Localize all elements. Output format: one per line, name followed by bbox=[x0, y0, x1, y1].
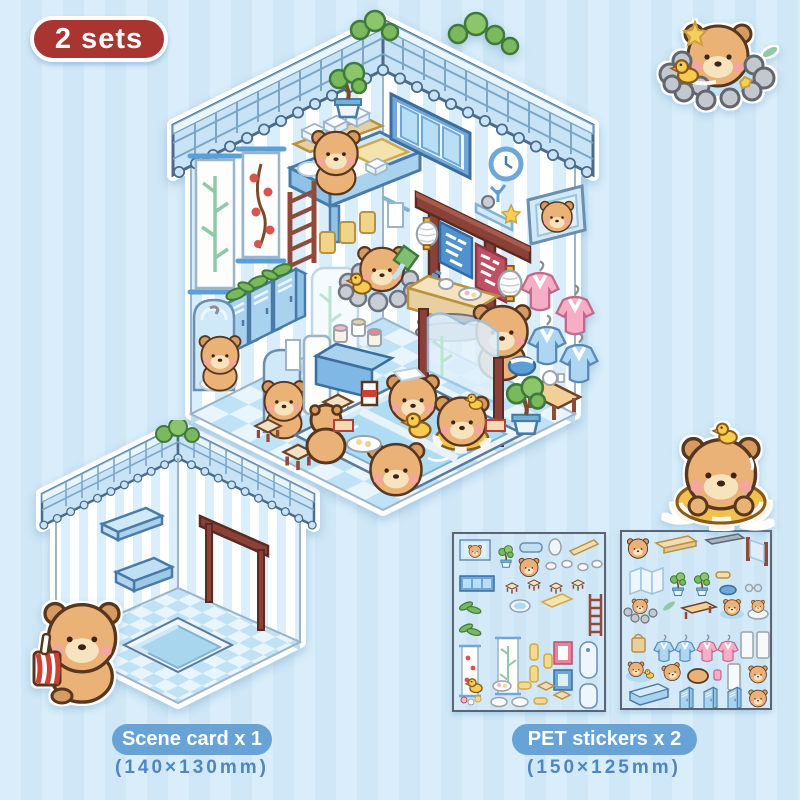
snack-box bbox=[486, 420, 505, 431]
sheet1-scrolls bbox=[459, 638, 521, 696]
pet-stickers-dimensions: (150×125mm) bbox=[494, 757, 714, 779]
product-image-capybara-bathhouse-sticker-set: { "badge": { "label": "2 sets" }, "scene… bbox=[0, 0, 800, 800]
beach-ball bbox=[509, 357, 535, 375]
sheet2-items bbox=[622, 532, 770, 708]
sheet2-lockers bbox=[630, 684, 741, 708]
bamboo-scroll bbox=[190, 156, 240, 292]
sheet2-glasses bbox=[746, 585, 762, 592]
pet-sticker-sheet-1 bbox=[452, 532, 606, 712]
sheet2-basket bbox=[632, 635, 645, 653]
scene-card-dimensions: (140×130mm) bbox=[82, 757, 302, 779]
quantity-badge: 2 sets bbox=[30, 16, 168, 62]
back-view-capybara bbox=[307, 405, 345, 463]
plum-scroll bbox=[238, 149, 284, 261]
sheet2-folding-screen bbox=[630, 568, 663, 594]
badge-label: 2 sets bbox=[55, 23, 143, 56]
sheet1-ladder bbox=[590, 594, 601, 636]
swim-ring-capybara-sticker bbox=[646, 420, 796, 536]
sheet2-capy-pool bbox=[626, 662, 654, 682]
hot-spring-capybara-sticker bbox=[642, 16, 792, 120]
sheet1-plants bbox=[458, 600, 481, 636]
drink-capybara-sticker bbox=[24, 592, 128, 707]
sheet1-items bbox=[454, 534, 604, 710]
main-scene-sticker bbox=[98, 6, 668, 518]
scene-card-count-pill: Scene card x 1 bbox=[112, 724, 272, 755]
wall-clock bbox=[491, 149, 521, 179]
scene-card-count-label: Scene card x 1 bbox=[122, 728, 262, 751]
pet-sticker-sheet-2 bbox=[620, 530, 772, 710]
milk-carton bbox=[362, 382, 377, 405]
floating-tray bbox=[347, 436, 381, 452]
sheet2-glass-screen bbox=[746, 537, 768, 566]
pet-stickers-count-pill: PET stickers x 2 bbox=[512, 724, 697, 755]
sheet2-capy-in-stones bbox=[624, 599, 657, 623]
pet-stickers-count-label: PET stickers x 2 bbox=[528, 728, 681, 751]
sheet1-window bbox=[460, 576, 494, 591]
swim-ring-capybara-in-pool bbox=[436, 394, 489, 450]
snack-box bbox=[334, 420, 353, 431]
